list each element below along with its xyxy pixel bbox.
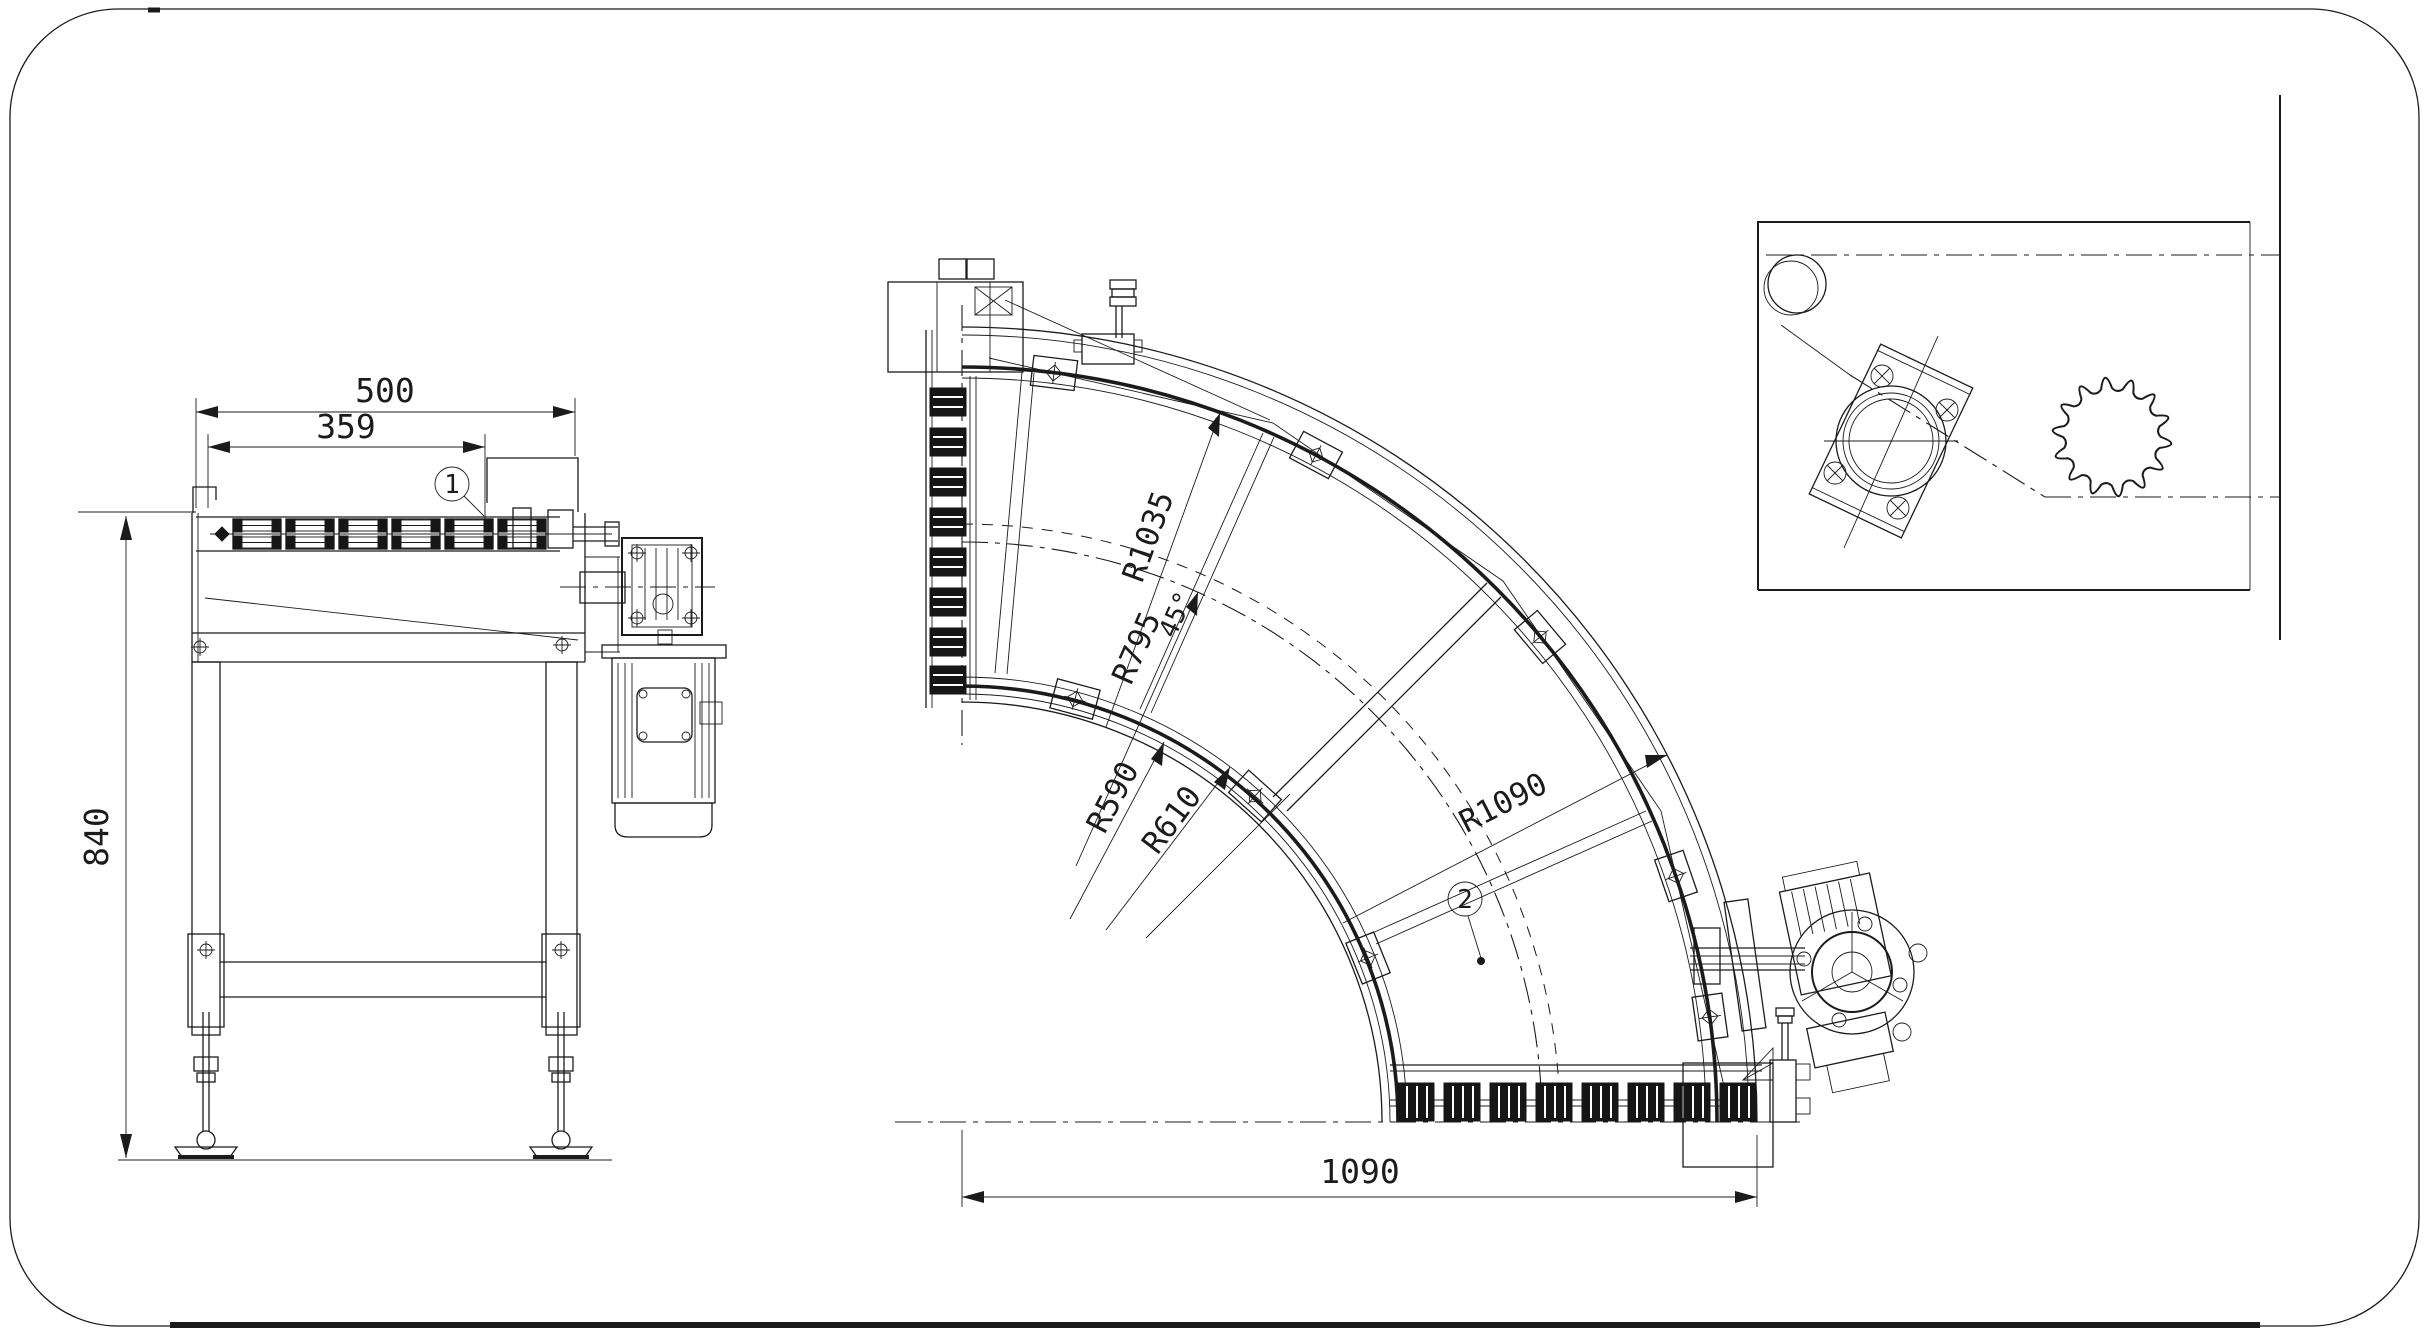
drawing-sheet: 500 359 840 1 (0, 0, 2429, 1335)
drive-guard (487, 458, 578, 512)
detail-view (1758, 95, 2280, 640)
balloon-2: 2 (1448, 882, 1485, 965)
balloon-1-label: 1 (444, 470, 460, 500)
bearing-plate (1809, 336, 1973, 548)
dim-359-label: 359 (316, 407, 376, 446)
plan-view: R1035 R795 45° R590 R610 R1090 2 (888, 259, 1927, 1207)
balloon-1: 1 (435, 467, 484, 516)
dim-1090-label: 1090 (1320, 1152, 1399, 1191)
sprocket (2053, 378, 2172, 497)
radial-members (989, 300, 1726, 1095)
technical-drawing: 500 359 840 1 (0, 0, 2429, 1335)
support-legs (118, 662, 612, 1160)
dim-r1035-label: R1035 (1116, 487, 1182, 587)
dimension-840: 840 (77, 512, 196, 1158)
infeed-assembly (888, 259, 1142, 708)
side-elevation-view: 500 359 840 1 (77, 371, 726, 1160)
drawing-border (10, 9, 2419, 1326)
dimension-359: 359 (208, 407, 485, 520)
dim-r1090-label: R1090 (1454, 766, 1553, 840)
dim-r610-label: R610 (1135, 779, 1209, 860)
dim-840-label: 840 (77, 807, 116, 867)
drive-unit-plan (1690, 859, 1927, 1095)
curve-arcs (962, 327, 1757, 1122)
dim-500-label: 500 (355, 371, 415, 410)
dim-r590-label: R590 (1080, 756, 1147, 839)
balloon-2-label: 2 (1457, 885, 1473, 915)
guide-pads (1030, 355, 1728, 1040)
conveyor-deck (193, 487, 612, 551)
dimension-1090: 1090 (962, 1130, 1757, 1207)
outfeed-assembly (1390, 1008, 1810, 1167)
radius-dimensions: R1035 R795 45° R590 R610 R1090 (1070, 413, 1667, 930)
dim-45deg-label: 45° (1153, 587, 1200, 642)
frame-body (191, 513, 620, 662)
dimension-500: 500 (196, 371, 575, 508)
deck-drive-shaft (513, 508, 619, 548)
